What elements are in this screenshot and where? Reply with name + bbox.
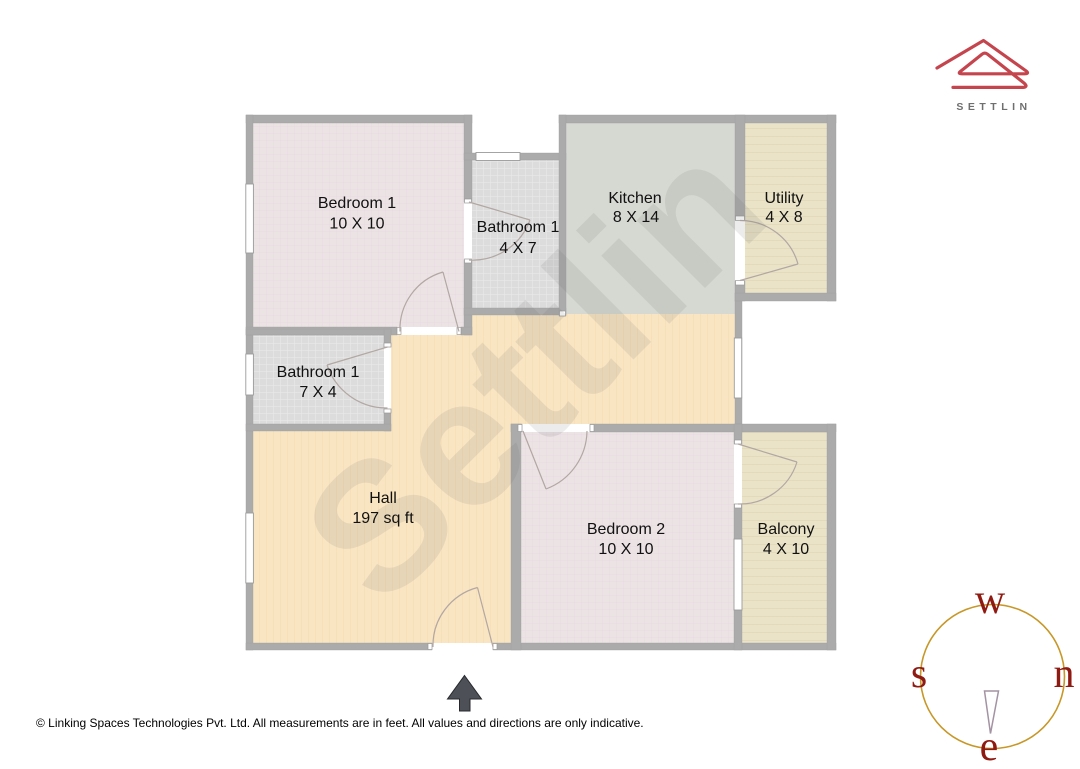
svg-text:Kitchen: Kitchen [608,190,661,207]
svg-text:197 sq ft: 197 sq ft [352,510,414,527]
svg-text:SETTLIN: SETTLIN [956,101,1031,113]
svg-text:Bedroom 2: Bedroom 2 [587,521,665,538]
svg-text:Bathroom 1: Bathroom 1 [277,364,360,381]
svg-text:4 X 7: 4 X 7 [499,240,536,257]
svg-text:Hall: Hall [369,490,397,507]
svg-text:© Linking Spaces Technologies: © Linking Spaces Technologies Pvt. Ltd. … [36,716,644,730]
svg-text:s: s [911,651,927,697]
svg-text:Bathroom 1: Bathroom 1 [477,219,560,236]
svg-text:4 X 8: 4 X 8 [765,209,802,226]
svg-text:n: n [1054,651,1075,697]
svg-text:4 X 10: 4 X 10 [763,541,809,558]
svg-text:10 X 10: 10 X 10 [598,541,653,558]
svg-text:w: w [975,577,1006,623]
svg-text:Bedroom 1: Bedroom 1 [318,195,396,212]
svg-text:Utility: Utility [764,190,803,207]
svg-text:10 X 10: 10 X 10 [329,216,384,233]
svg-text:8 X 14: 8 X 14 [613,209,659,226]
svg-text:e: e [980,724,999,764]
svg-text:7 X 4: 7 X 4 [299,384,336,401]
svg-text:Balcony: Balcony [758,521,815,538]
